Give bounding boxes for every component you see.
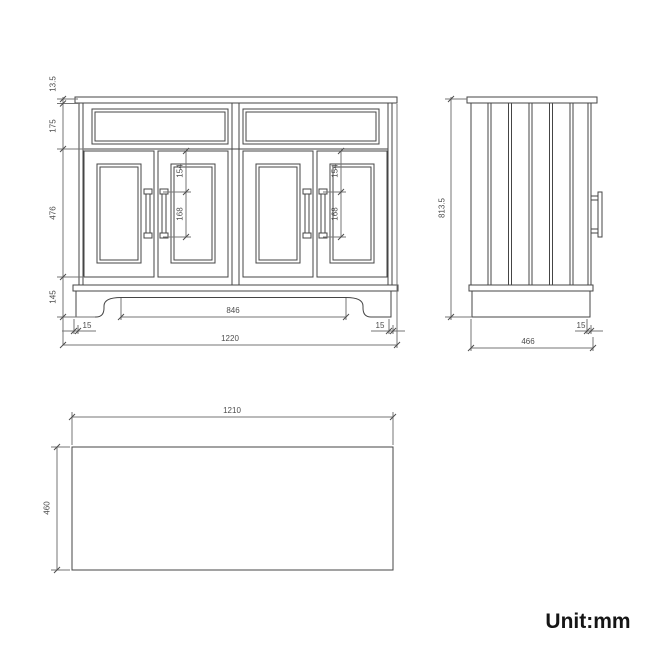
front-door-1 — [84, 151, 154, 277]
dim-drawer-height: 175 — [49, 119, 58, 133]
dim-handle-length: 168 — [176, 207, 185, 221]
front-door-4 — [317, 151, 387, 277]
front-countertop — [75, 97, 397, 103]
dim-handle-top-offset: 154 — [176, 164, 185, 178]
drawing-sheet: 13.5 175 476 145 154 168 154 168 — [0, 0, 650, 650]
front-drawer-left — [92, 109, 228, 144]
door-handle-icon-4 — [319, 189, 327, 238]
door-handle-icon-2 — [160, 189, 168, 238]
dim-plinth-height: 145 — [49, 290, 58, 304]
side-body — [471, 103, 591, 285]
side-view: 813.5 15 466 — [438, 96, 604, 351]
side-dim-door-inset: 15 — [575, 319, 603, 334]
front-body — [79, 103, 392, 285]
side-countertop — [467, 97, 597, 103]
dim-handle-length-2: 168 — [331, 207, 340, 221]
dim-overall-height: 813.5 — [438, 197, 447, 218]
front-dim-inset-left: 15 — [62, 319, 96, 334]
top-view: 1210 460 — [43, 406, 397, 573]
dim-inset-left: 15 — [83, 321, 92, 330]
door-handle-icon-3 — [303, 189, 311, 238]
dim-plinth-opening-width: 846 — [226, 306, 240, 315]
front-door-2 — [158, 151, 228, 277]
dim-door-height: 476 — [49, 206, 58, 220]
side-plinth — [469, 285, 593, 317]
dim-inset-right: 15 — [376, 321, 385, 330]
dim-top-depth: 460 — [43, 501, 52, 515]
dim-countertop-thickness: 13.5 — [49, 76, 58, 92]
top-dim-depth: 460 — [43, 444, 71, 573]
top-dim-width: 1210 — [69, 406, 396, 445]
dim-overall-depth: 466 — [521, 337, 535, 346]
side-dim-overall-height: 813.5 — [438, 96, 473, 320]
dim-door-inset: 15 — [577, 321, 586, 330]
unit-note: Unit:mm — [545, 610, 630, 633]
technical-drawing-canvas: 13.5 175 476 145 154 168 154 168 — [0, 0, 650, 650]
front-dim-plinth-opening: 846 — [118, 298, 349, 320]
front-drawer-right — [243, 109, 379, 144]
front-dim-chain-left: 13.5 175 476 145 — [49, 76, 96, 345]
dim-top-width: 1210 — [223, 406, 241, 415]
door-handle-icon-1 — [144, 189, 152, 238]
side-handle-icon — [591, 192, 602, 237]
dim-overall-width: 1220 — [221, 334, 239, 343]
front-dim-inset-right: 15 — [371, 319, 405, 334]
dim-handle-top-offset-2: 154 — [331, 164, 340, 178]
front-view: 13.5 175 476 145 154 168 154 168 — [49, 76, 406, 348]
top-view-outline — [72, 447, 393, 570]
front-door-3 — [243, 151, 313, 277]
